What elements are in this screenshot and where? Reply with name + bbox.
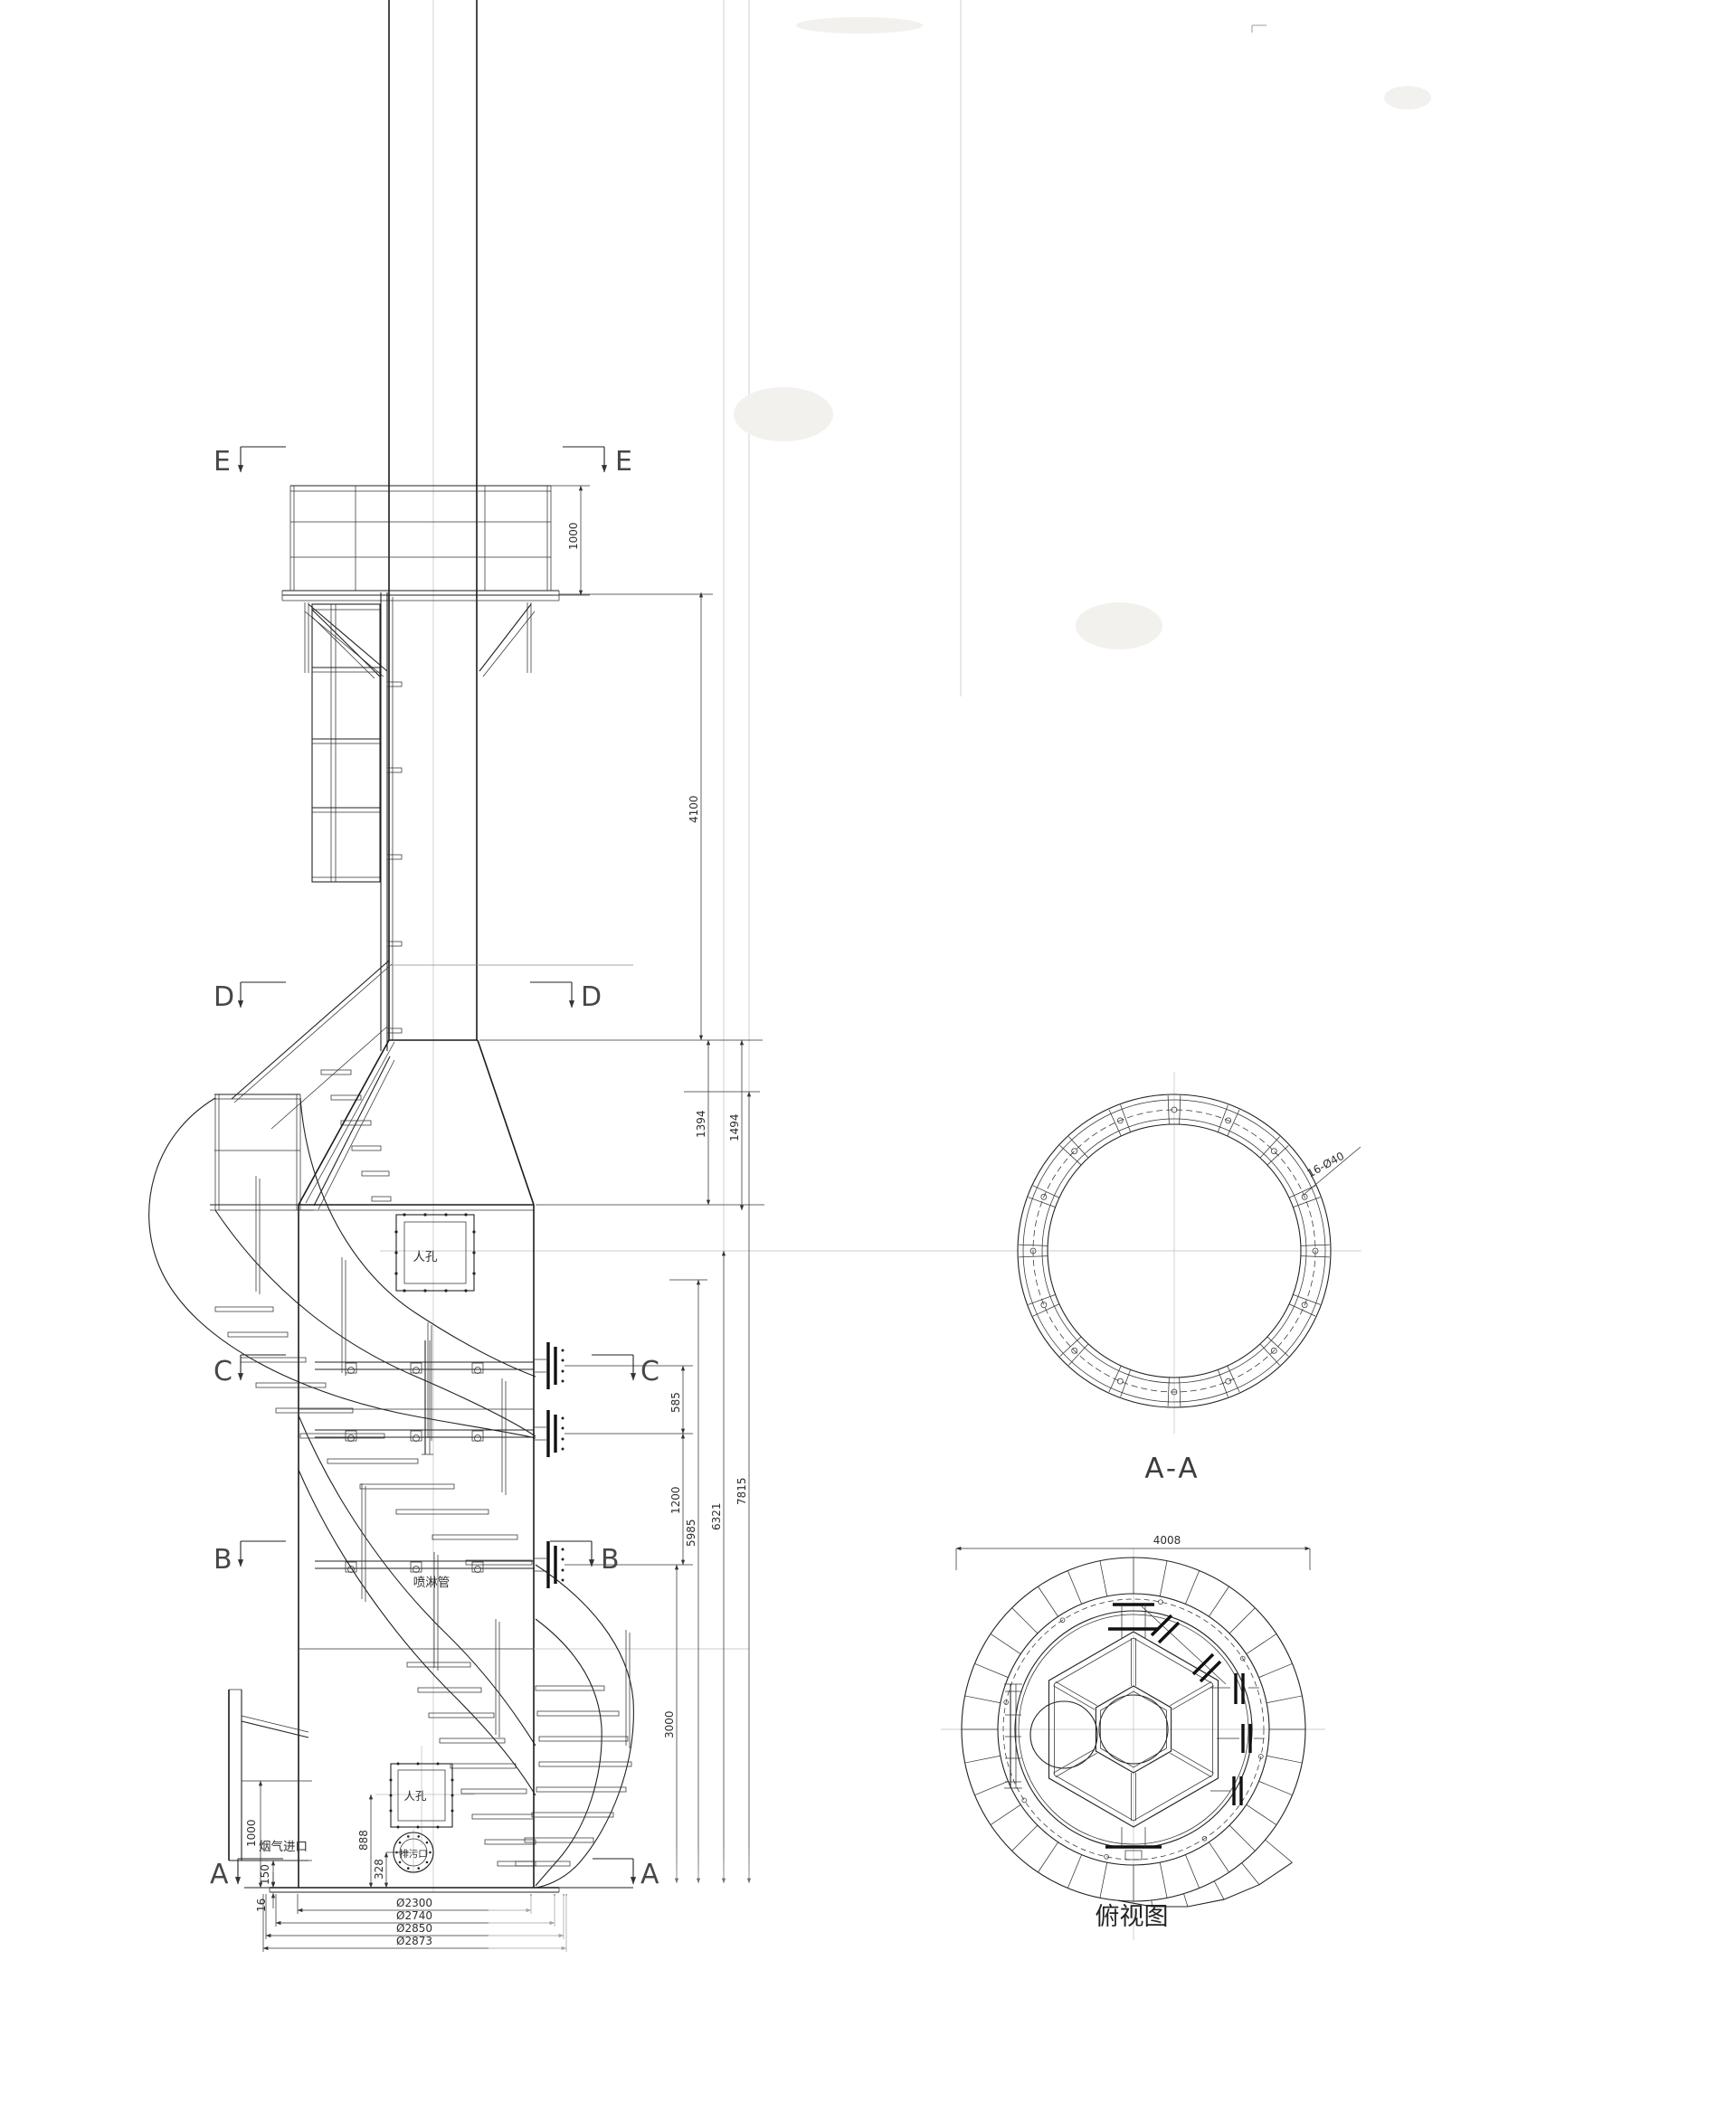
dim-inlet-height: 1000 (245, 1819, 258, 1847)
marker-a-right: A (640, 1859, 659, 1890)
dim-plate-thk: 16 (255, 1898, 268, 1912)
dim-nozzle-gap-2: 1200 (669, 1486, 682, 1514)
tower-drawing-svg: E E D D C C B B A A 人孔 人孔 喷淋管 排污口 烟气进口 A… (0, 0, 1736, 2121)
marker-b-right: B (601, 1544, 620, 1576)
dim-plan-dia: 4008 (1153, 1534, 1181, 1547)
dim-dia-2873: Ø2873 (396, 1935, 432, 1947)
label-manhole-lower: 人孔 (403, 1789, 427, 1803)
dim-drain-elev: 328 (373, 1859, 385, 1880)
label-drain: 排污口 (399, 1848, 428, 1860)
dim-cone-total: 1494 (728, 1113, 741, 1141)
marker-a-left: A (210, 1859, 229, 1890)
marker-d-right: D (581, 981, 602, 1013)
label-manhole-upper: 人孔 (413, 1250, 438, 1264)
label-spray-pipe: 喷淋管 (413, 1576, 451, 1590)
dim-shell-3: 7815 (735, 1477, 748, 1505)
dim-dia-2300: Ø2300 (396, 1897, 432, 1909)
label-top-view: 俯视图 (1096, 1903, 1169, 1931)
marker-c-left: C (213, 1356, 232, 1387)
dim-dia-2740: Ø2740 (396, 1909, 432, 1922)
marker-c-right: C (640, 1356, 659, 1387)
dim-stack-height: 4100 (688, 795, 700, 823)
dim-nozzle-gap-1: 585 (669, 1392, 682, 1413)
dim-skirt: 150 (259, 1864, 271, 1885)
plan-view (956, 1548, 1310, 1907)
dim-cone-height: 1394 (695, 1110, 707, 1138)
elevation-view (210, 0, 749, 1892)
dim-shell-2: 6321 (710, 1502, 723, 1530)
note-bolt-holes: 16-Ø40 (1305, 1150, 1347, 1180)
dim-shell-1: 5985 (685, 1519, 697, 1547)
dim-platform-rail: 1000 (567, 522, 580, 550)
dim-dia-2850: Ø2850 (396, 1922, 432, 1935)
drawing-sheet: E E D D C C B B A A 人孔 人孔 喷淋管 排污口 烟气进口 A… (0, 0, 1736, 2121)
marker-d-left: D (213, 981, 234, 1013)
label-section-aa: A-A (1144, 1453, 1200, 1485)
label-flue-inlet: 烟气进口 (259, 1840, 308, 1854)
dim-manhole-elev: 888 (357, 1830, 370, 1851)
marker-e-left: E (213, 446, 231, 478)
marker-e-right: E (615, 446, 632, 478)
marker-b-left: B (213, 1544, 232, 1576)
dim-lower-section: 3000 (663, 1710, 676, 1738)
